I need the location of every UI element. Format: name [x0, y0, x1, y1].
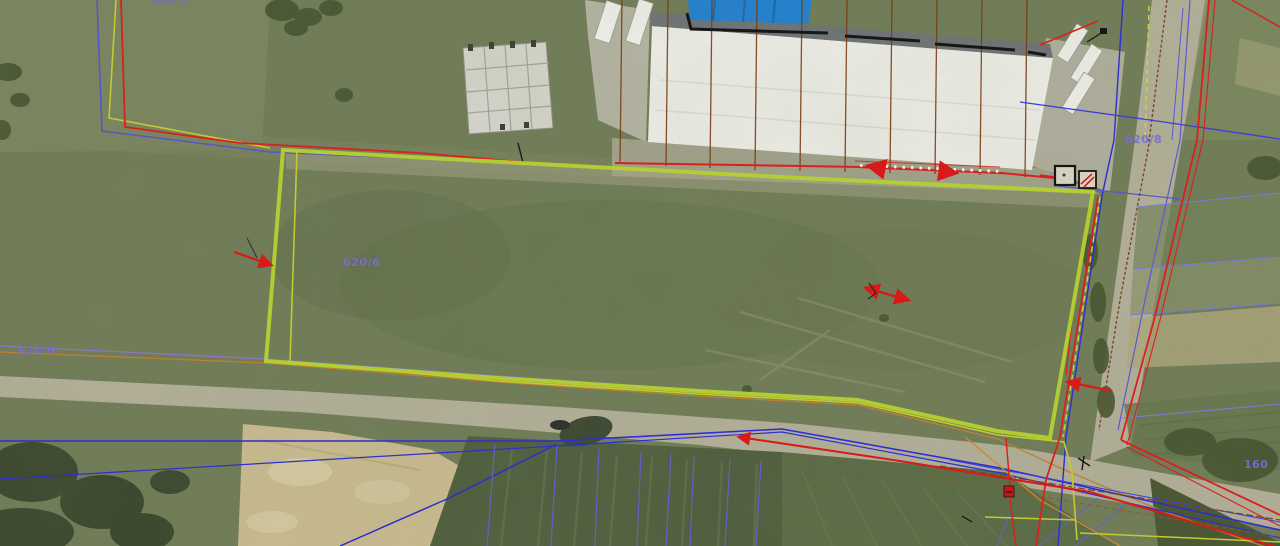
map-viewport[interactable]: 620/6 620/6 620/8 160 620/7 — [0, 0, 1280, 546]
aerial-map-canvas[interactable] — [0, 0, 1280, 546]
texture-grain — [0, 0, 1280, 546]
